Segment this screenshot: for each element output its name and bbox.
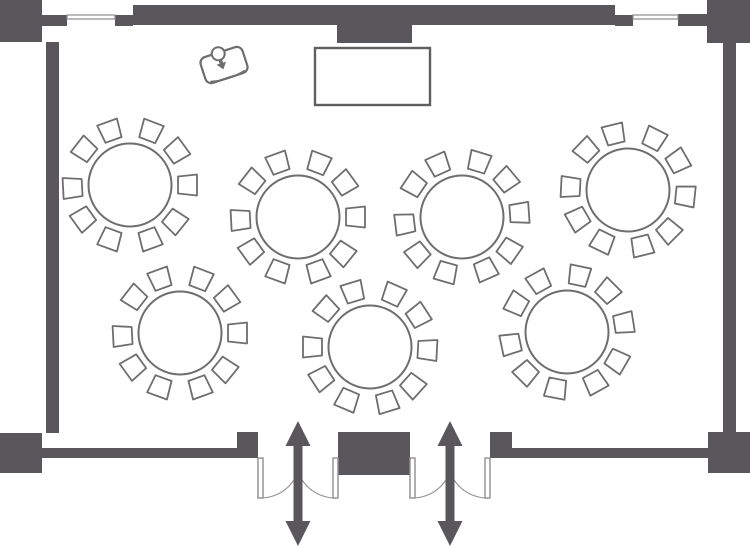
- window-top-left: [67, 15, 115, 19]
- corner-top-right: [707, 0, 750, 43]
- table-top: [587, 149, 670, 232]
- wall-right: [723, 43, 736, 432]
- wall-top-window-stub-left: [115, 15, 133, 26]
- wall-left: [46, 42, 59, 433]
- wall-bottom-right: [512, 448, 708, 458]
- wall-top-right-tab: [678, 14, 707, 26]
- corner-top-left: [0, 0, 42, 42]
- head-table[interactable]: [315, 48, 430, 105]
- door-leaf: [410, 458, 415, 498]
- chair: [231, 209, 251, 231]
- chair: [509, 202, 529, 224]
- wall-top-left-tab: [42, 15, 67, 26]
- chair: [675, 185, 696, 208]
- door-leaf: [485, 458, 490, 498]
- chair: [417, 339, 437, 361]
- chair: [346, 207, 365, 228]
- table-top: [421, 176, 504, 259]
- floor-plan-canvas: [0, 0, 750, 547]
- table-top: [526, 291, 609, 374]
- door-leaf: [333, 458, 338, 498]
- door-leaf: [258, 458, 263, 498]
- chair: [178, 175, 197, 196]
- chair: [561, 176, 581, 198]
- chair: [303, 337, 322, 358]
- wall-top-pillar: [337, 25, 412, 43]
- chair: [228, 323, 247, 344]
- table-top: [139, 292, 222, 375]
- chair: [113, 325, 133, 347]
- wall-bottom-left: [42, 448, 237, 458]
- wall-bottom-center-block: [338, 432, 410, 475]
- door-jamb-pillar-right: [490, 432, 512, 458]
- door-jamb-pillar-left: [237, 432, 258, 458]
- wall-top-window-stub-right: [615, 15, 633, 26]
- floor-plan: [0, 0, 750, 547]
- chair: [63, 177, 83, 199]
- corner-bottom-right: [708, 432, 750, 473]
- window-top-right: [633, 15, 678, 19]
- wall-top-main: [133, 5, 615, 25]
- table-top: [329, 306, 412, 389]
- table-top: [257, 176, 340, 259]
- corner-bottom-left: [0, 433, 42, 473]
- chair: [613, 311, 635, 335]
- table-top: [89, 144, 172, 227]
- chair: [394, 212, 415, 235]
